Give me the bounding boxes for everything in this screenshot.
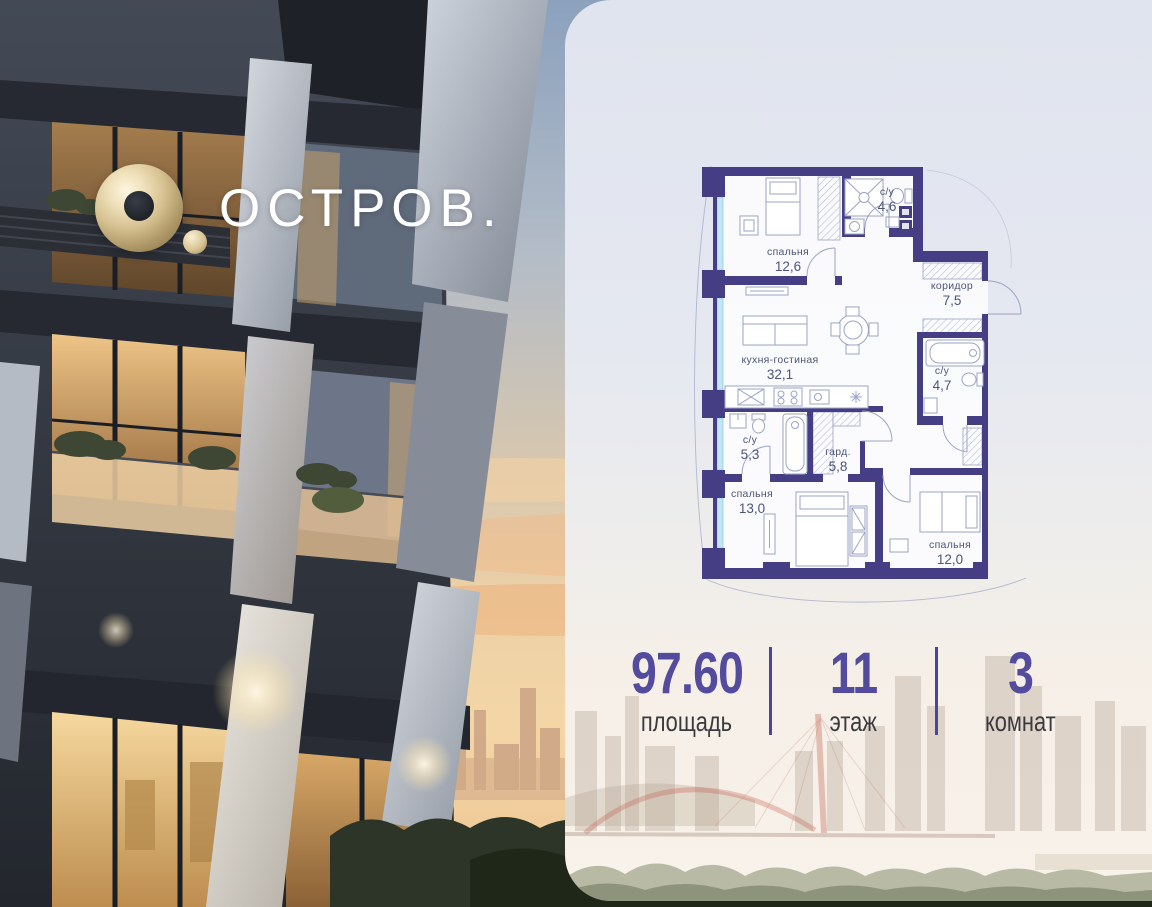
listing-banner: ОСТРОВ. [0,0,1152,907]
brand-dot-icon [183,230,207,254]
brand-name: ОСТРОВ. [219,178,504,239]
brand-logo: ОСТРОВ. [95,164,504,252]
floor-plan: спальня12,6 с/у4,6 коридор7,5 кухня-гост… [690,158,1040,603]
apartment-stats: 97.60 площадь 11 этаж 3 комнат [605,643,1102,739]
room-label-bathroom-1: с/у4,6 [878,186,897,215]
room-label-kitchen-living: кухня-гостиная32,1 [741,354,818,383]
stat-floor: 11 этаж [772,643,936,739]
stat-area: 97.60 площадь [605,643,769,739]
brand-mark-icon [95,164,183,252]
room-label-bedroom-3: спальня12,0 [929,539,971,568]
room-label-bathroom-2: с/у4,7 [933,365,952,394]
stat-rooms: 3 комнат [938,643,1102,739]
room-label-bedroom-2: спальня13,0 [731,488,773,517]
room-label-bedroom-1: спальня12,6 [767,246,809,275]
room-label-corridor: коридор7,5 [931,280,973,309]
room-label-wardrobe: гард.5,8 [825,446,851,475]
apartment-card: спальня12,6 с/у4,6 коридор7,5 кухня-гост… [565,0,1152,901]
room-label-bathroom-3: с/у5,3 [741,434,760,463]
